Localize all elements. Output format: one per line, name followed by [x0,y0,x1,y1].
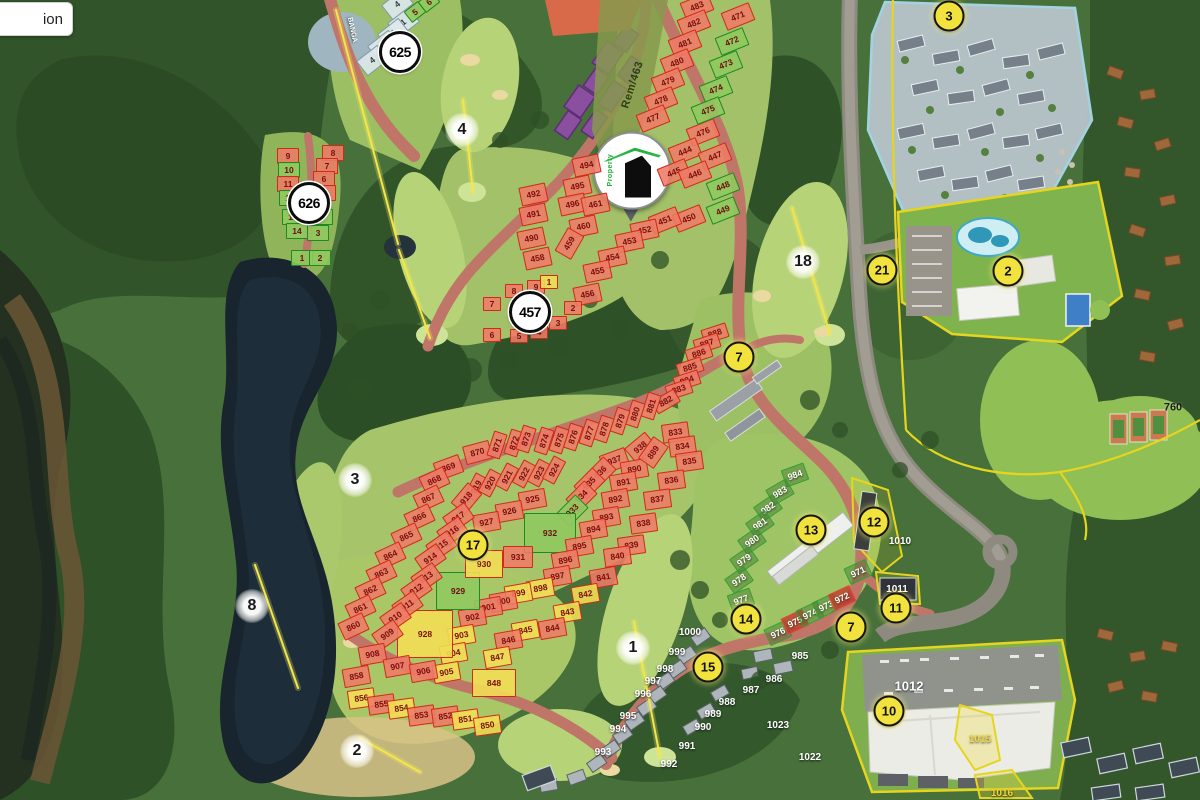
estate-map: ion Property 123445698107116125134143124… [0,0,1200,800]
parcel-906[interactable]: 906 [408,659,438,682]
legend-label: ion [43,11,63,28]
map-label-1022: 1022 [799,753,821,763]
parcel-6[interactable]: 6 [483,328,501,342]
parcel-2[interactable]: 2 [309,250,331,266]
parcel-837[interactable]: 837 [642,488,671,511]
hole-marker-8[interactable]: 8 [235,589,269,623]
map-label-989: 989 [705,710,722,720]
map-label-986: 986 [766,675,783,685]
amenity-marker-15[interactable]: 15 [693,652,724,683]
plat-marker-625[interactable]: 625 [379,31,421,73]
logo-house-icon [625,156,651,198]
amenity-marker-13[interactable]: 13 [796,515,827,546]
amenity-marker-3[interactable]: 3 [934,1,965,32]
hole-marker-2[interactable]: 2 [340,734,374,768]
map-label-994: 994 [610,725,627,735]
map-label-987: 987 [743,686,760,696]
map-label-999: 999 [669,648,686,658]
logo-text: Property [607,154,614,187]
legend-box[interactable]: ion [0,2,73,36]
amenity-marker-12[interactable]: 12 [859,507,890,538]
map-label-1000: 1000 [679,628,701,638]
parcel-844[interactable]: 844 [537,616,567,639]
amenity-marker-7[interactable]: 7 [836,612,867,643]
map-label-995: 995 [620,712,637,722]
amenity-marker-11[interactable]: 11 [881,593,912,624]
parcel-848[interactable]: 848 [472,669,516,697]
amenity-marker-21[interactable]: 21 [867,255,898,286]
plat-marker-626[interactable]: 626 [288,182,330,224]
parcel-7[interactable]: 7 [483,297,501,311]
map-label-991: 991 [679,742,696,752]
map-label-997: 997 [645,677,662,687]
parcel-14[interactable]: 14 [286,223,308,239]
map-label-990: 990 [695,723,712,733]
map-label-993: 993 [595,748,612,758]
parcel-3[interactable]: 3 [549,316,567,330]
map-label-998: 998 [657,665,674,675]
amenity-marker-17[interactable]: 17 [458,530,489,561]
map-label-1012: 1012 [895,680,924,693]
parcel-836[interactable]: 836 [656,469,685,492]
parcel-838[interactable]: 838 [628,512,657,535]
plat-marker-457[interactable]: 457 [509,291,551,333]
hole-marker-3[interactable]: 3 [338,463,372,497]
hole-marker-1[interactable]: 1 [616,631,650,665]
map-label-985: 985 [792,652,809,662]
amenity-marker-14[interactable]: 14 [731,604,762,635]
amenity-marker-2[interactable]: 2 [993,256,1024,287]
terrain-art [0,0,1200,800]
amenity-marker-10[interactable]: 10 [874,696,905,727]
parcel-2[interactable]: 2 [564,301,582,315]
map-label-992: 992 [661,760,678,770]
parcel-840[interactable]: 840 [602,545,631,568]
map-label-1010: 1010 [889,537,911,547]
parcel-1[interactable]: 1 [540,275,558,289]
map-label-1015: 1015 [969,735,991,745]
parcel-3[interactable]: 3 [307,225,329,241]
parcel-931[interactable]: 931 [503,546,533,568]
parcel-858[interactable]: 858 [341,664,371,687]
amenity-marker-7[interactable]: 7 [724,342,755,373]
hole-marker-4[interactable]: 4 [445,113,479,147]
map-label-760: 760 [1164,403,1182,414]
map-label-988: 988 [719,698,736,708]
map-label-1016: 1016 [991,789,1013,799]
map-label-1023: 1023 [767,721,789,731]
parcel-907[interactable]: 907 [382,654,412,677]
parcel-850[interactable]: 850 [472,714,501,737]
hole-marker-18[interactable]: 18 [786,245,820,279]
parcel-847[interactable]: 847 [482,645,512,668]
map-label-996: 996 [635,690,652,700]
